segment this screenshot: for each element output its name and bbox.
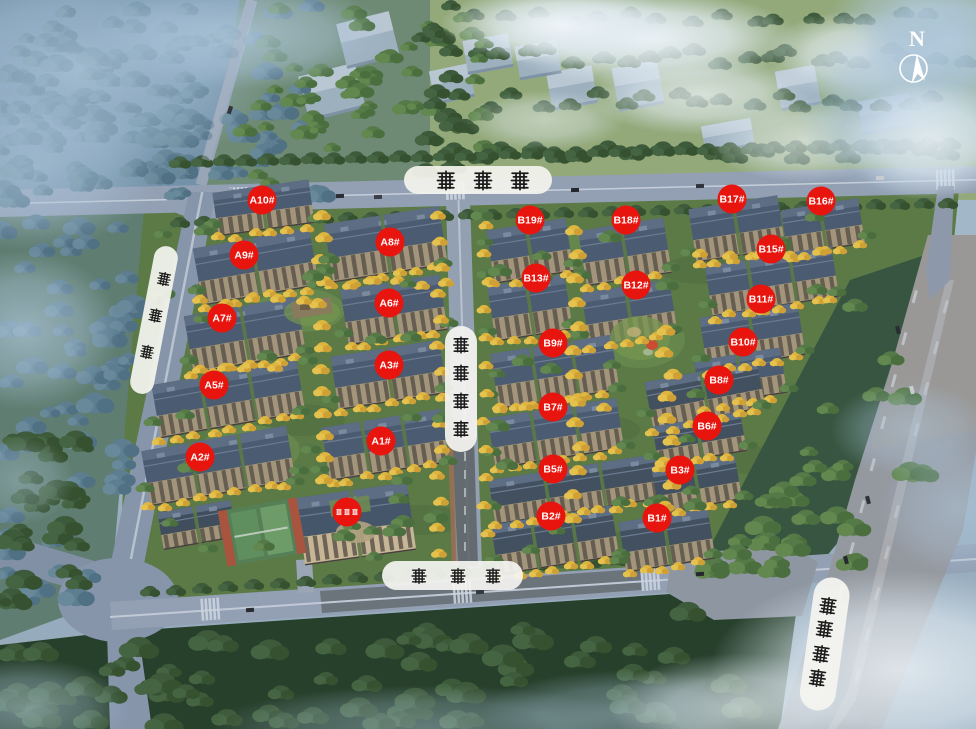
svg-text:B1#: B1# xyxy=(647,513,666,525)
svg-text:B16#: B16# xyxy=(808,196,833,208)
svg-text:B6#: B6# xyxy=(697,421,716,433)
svg-text:B2#: B2# xyxy=(541,511,560,523)
svg-text:B7#: B7# xyxy=(543,402,562,414)
svg-text:A1#: A1# xyxy=(371,436,390,448)
svg-text:B3#: B3# xyxy=(670,465,689,477)
svg-text:B10#: B10# xyxy=(730,337,755,349)
svg-text:A2#: A2# xyxy=(190,452,209,464)
svg-text:B17#: B17# xyxy=(719,194,744,206)
svg-text:A6#: A6# xyxy=(379,298,398,310)
svg-text:B18#: B18# xyxy=(613,215,638,227)
svg-text:A8#: A8# xyxy=(380,237,399,249)
svg-text:B11#: B11# xyxy=(749,294,774,306)
svg-text:A10#: A10# xyxy=(249,195,274,207)
svg-text:N: N xyxy=(909,26,925,51)
svg-text:B13#: B13# xyxy=(523,273,548,285)
svg-text:B5#: B5# xyxy=(543,464,562,476)
svg-text:A3#: A3# xyxy=(379,360,398,372)
svg-text:B19#: B19# xyxy=(517,215,542,227)
svg-text:A7#: A7# xyxy=(212,313,231,325)
svg-text:B9#: B9# xyxy=(543,338,562,350)
svg-text:A5#: A5# xyxy=(204,380,223,392)
svg-text:B12#: B12# xyxy=(623,280,648,292)
svg-text:B8#: B8# xyxy=(709,375,728,387)
svg-text:B15#: B15# xyxy=(758,244,783,256)
svg-text:A9#: A9# xyxy=(234,250,253,262)
